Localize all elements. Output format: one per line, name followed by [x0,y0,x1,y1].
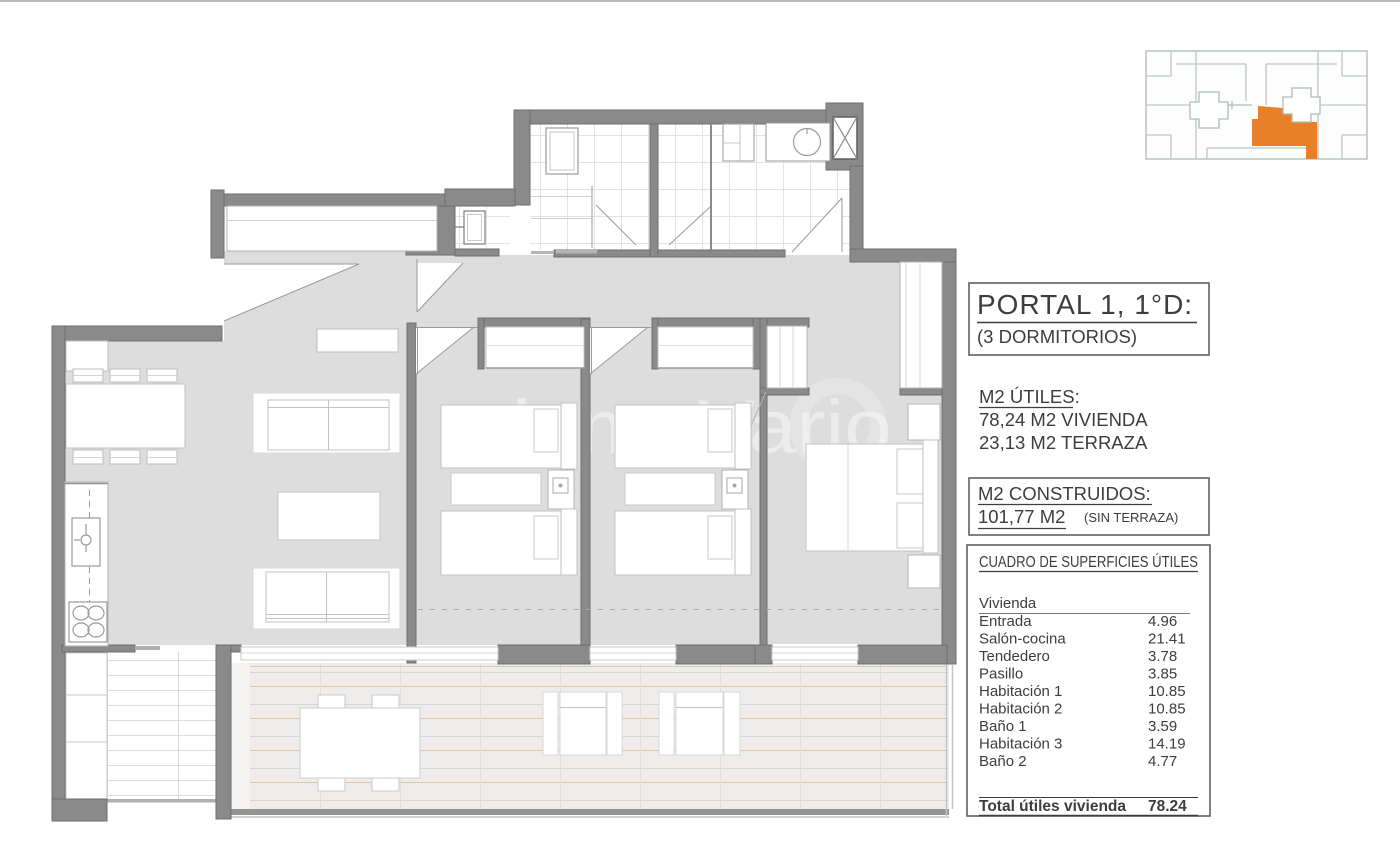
svg-text:4.77: 4.77 [1148,753,1177,770]
svg-text:3.78: 3.78 [1148,648,1177,665]
svg-text:10.85: 10.85 [1148,683,1186,700]
svg-text:Habitación 1: Habitación 1 [979,683,1062,700]
svg-text:Vivienda: Vivienda [979,595,1037,612]
svg-text:3.85: 3.85 [1148,666,1177,683]
svg-text:M2 ÚTILES:: M2 ÚTILES: [979,386,1080,407]
svg-text:23,13 M2 TERRAZA: 23,13 M2 TERRAZA [979,432,1148,453]
svg-text:10.85: 10.85 [1148,701,1186,718]
svg-text:101,77 M2: 101,77 M2 [978,506,1065,527]
svg-text:78,24 M2 VIVIENDA: 78,24 M2 VIVIENDA [979,409,1148,430]
svg-text:3.59: 3.59 [1148,718,1177,735]
svg-text:(3 DORMITORIOS): (3 DORMITORIOS) [977,326,1137,347]
svg-text:21.41: 21.41 [1148,631,1186,648]
svg-text:14.19: 14.19 [1148,736,1186,753]
svg-text:Habitación 2: Habitación 2 [979,701,1062,718]
svg-text:Entrada: Entrada [979,613,1032,630]
svg-text:M2 CONSTRUIDOS:: M2 CONSTRUIDOS: [978,483,1151,504]
svg-text:Pasillo: Pasillo [979,666,1023,683]
svg-text:Tendedero: Tendedero [979,648,1050,665]
svg-text:78.24: 78.24 [1148,798,1187,815]
svg-text:Habitación 3: Habitación 3 [979,736,1062,753]
svg-text:Salón-cocina: Salón-cocina [979,631,1066,648]
svg-text:4.96: 4.96 [1148,613,1177,630]
svg-text:Total útiles vivienda: Total útiles vivienda [979,798,1126,815]
svg-text:Baño 1: Baño 1 [979,718,1027,735]
svg-text:(SIN TERRAZA): (SIN TERRAZA) [1084,510,1178,525]
svg-text:PORTAL 1, 1°D:: PORTAL 1, 1°D: [977,289,1193,320]
svg-text:CUADRO DE SUPERFICIES ÚTILES: CUADRO DE SUPERFICIES ÚTILES [979,554,1198,571]
svg-text:Baño 2: Baño 2 [979,753,1027,770]
